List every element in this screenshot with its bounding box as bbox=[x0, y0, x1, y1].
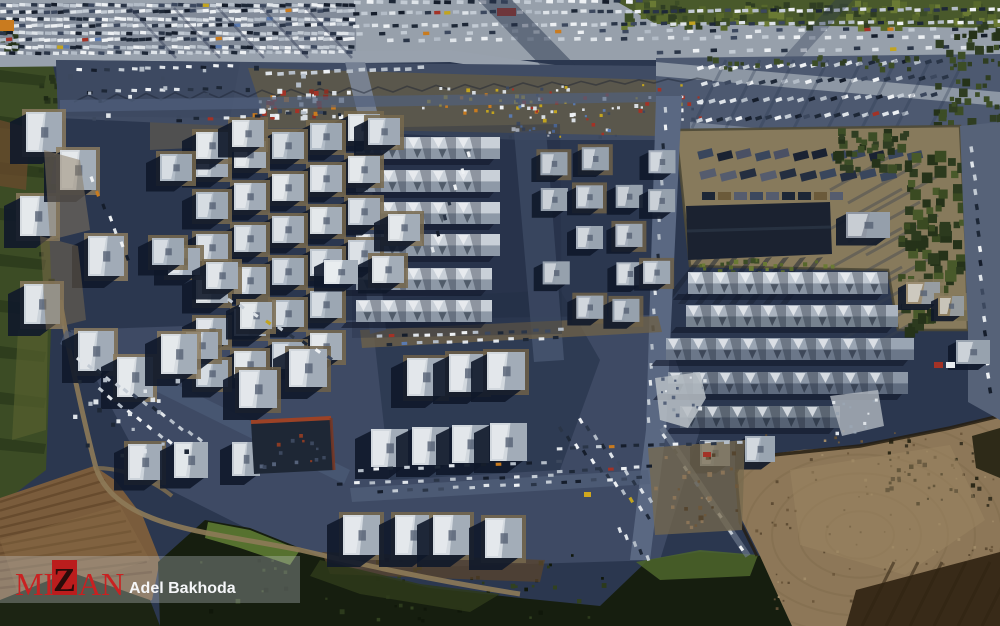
svg-text:Adel Bakhoda: Adel Bakhoda bbox=[129, 580, 236, 597]
svg-text:AN: AN bbox=[78, 566, 124, 602]
svg-text:Z: Z bbox=[53, 562, 76, 599]
svg-text:MI: MI bbox=[15, 566, 54, 602]
